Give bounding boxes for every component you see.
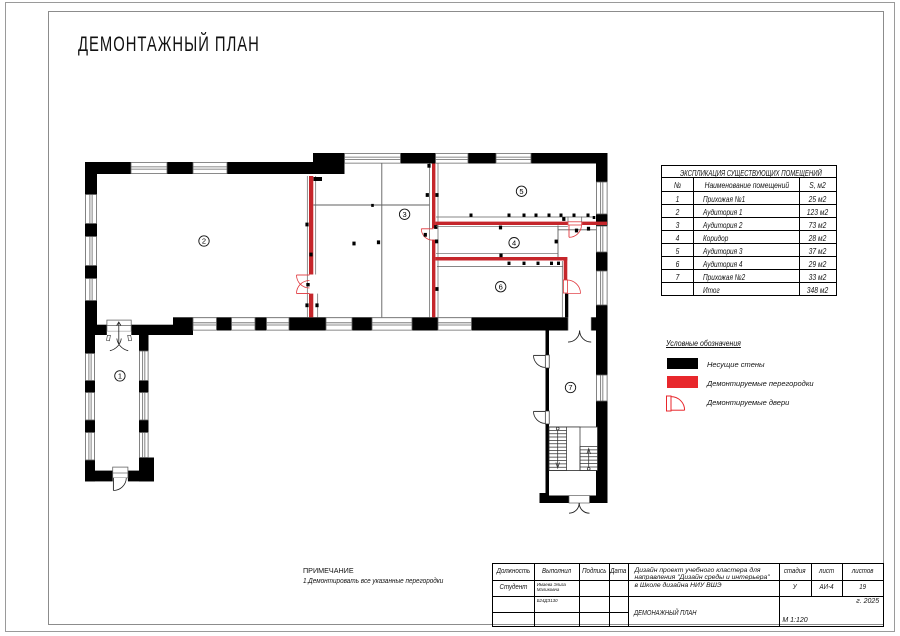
svg-text:5: 5 (519, 187, 523, 196)
svg-text:3: 3 (403, 210, 407, 219)
svg-text:7: 7 (568, 383, 572, 392)
svg-text:2: 2 (202, 237, 206, 246)
svg-text:4: 4 (512, 238, 516, 247)
svg-text:1: 1 (118, 372, 122, 381)
svg-text:6: 6 (499, 282, 503, 291)
